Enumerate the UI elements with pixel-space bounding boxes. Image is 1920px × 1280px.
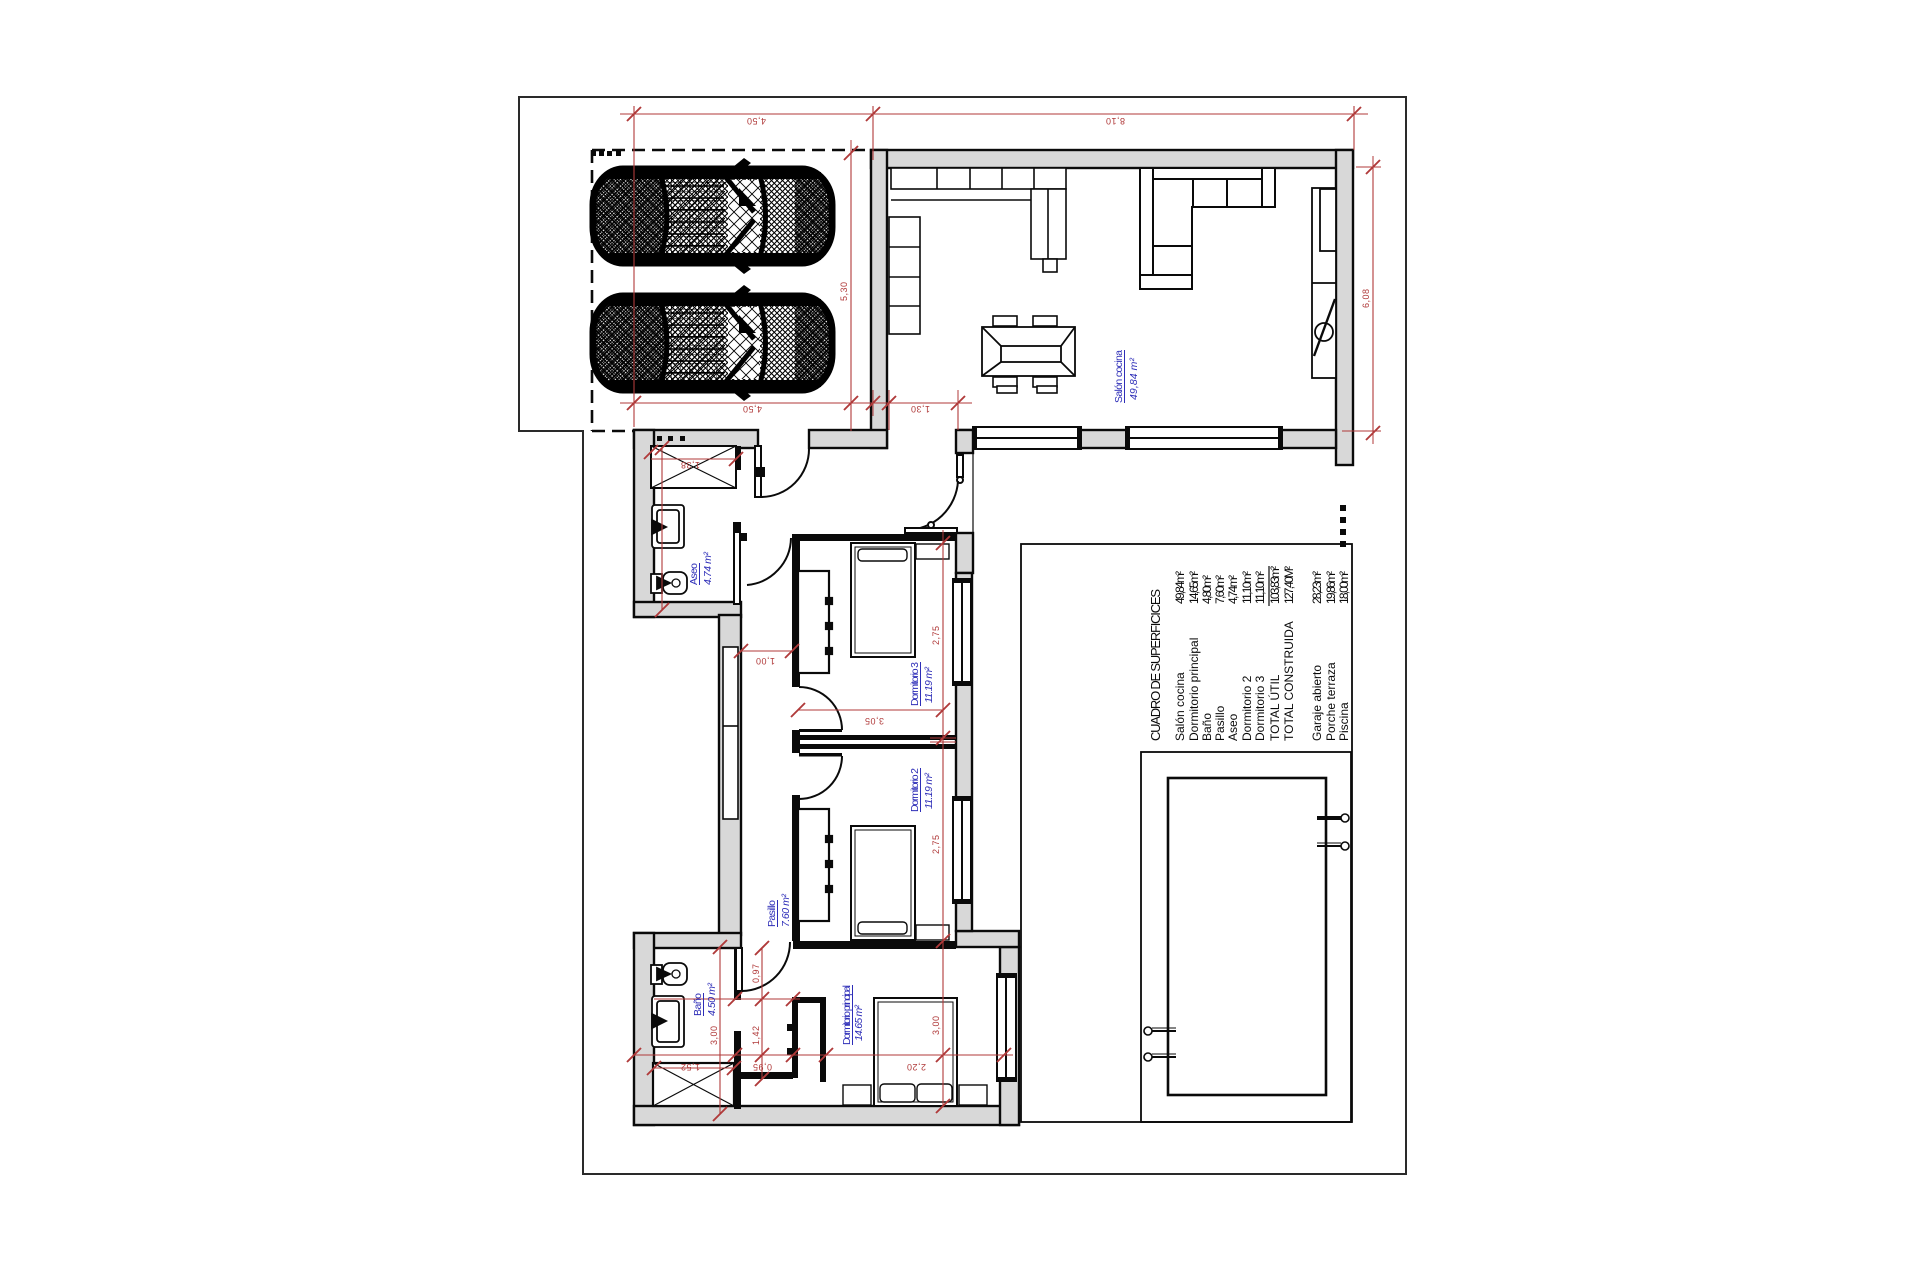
svg-text:TOTAL CONSTRUIDA: TOTAL CONSTRUIDA: [1282, 621, 1296, 741]
svg-text:2,75: 2,75: [931, 626, 941, 645]
svg-text:6,08: 6,08: [1361, 289, 1371, 308]
svg-text:103,83m²: 103,83m²: [1268, 566, 1282, 604]
svg-text:Aseo: Aseo: [1226, 713, 1240, 741]
svg-text:Dormitorio 2: Dormitorio 2: [909, 768, 921, 812]
svg-text:18,00m²: 18,00m²: [1337, 571, 1351, 604]
svg-text:3,00: 3,00: [709, 1026, 719, 1045]
svg-text:Salón cocina: Salón cocina: [1113, 350, 1125, 403]
svg-text:Salón cocina: Salón cocina: [1173, 672, 1187, 741]
svg-text:49,84 m²: 49,84 m²: [1128, 358, 1140, 401]
svg-text:7,60m²: 7,60m²: [1213, 575, 1227, 604]
svg-text:5,30: 5,30: [839, 282, 849, 301]
svg-text:1,00: 1,00: [756, 656, 775, 666]
svg-text:Dormitorio 2: Dormitorio 2: [1240, 675, 1254, 741]
svg-text:Aseo: Aseo: [688, 563, 700, 585]
svg-text:Dormitorio 3: Dormitorio 3: [1253, 675, 1267, 741]
svg-text:Garaje abierto: Garaje abierto: [1310, 665, 1324, 741]
svg-text:11.19 m²: 11.19 m²: [923, 773, 935, 810]
svg-text:11,10m²: 11,10m²: [1240, 571, 1254, 604]
svg-text:Dormitorio principal: Dormitorio principal: [1187, 638, 1201, 741]
svg-text:Baño: Baño: [1200, 713, 1214, 741]
svg-text:0,97: 0,97: [751, 964, 761, 983]
svg-text:127,40M²: 127,40M²: [1282, 566, 1296, 604]
svg-text:Piscina: Piscina: [1337, 702, 1351, 741]
svg-text:28,23m²: 28,23m²: [1310, 571, 1324, 604]
svg-text:1,30: 1,30: [911, 404, 930, 414]
svg-text:49,84m²: 49,84m²: [1173, 571, 1187, 604]
svg-text:4,80m²: 4,80m²: [1200, 575, 1214, 604]
svg-text:2,20: 2,20: [907, 1062, 926, 1072]
svg-text:11.19 m²: 11.19 m²: [923, 667, 935, 704]
svg-text:4,50: 4,50: [743, 404, 762, 414]
svg-text:0,95: 0,95: [753, 1062, 772, 1072]
svg-text:Pasillo: Pasillo: [766, 900, 778, 927]
svg-text:3,05: 3,05: [865, 716, 884, 726]
svg-text:1,42: 1,42: [751, 1026, 761, 1045]
svg-text:Dormitorio 3: Dormitorio 3: [909, 662, 921, 706]
svg-text:Dormitorio principal: Dormitorio principal: [841, 985, 853, 1045]
svg-text:11,10m²: 11,10m²: [1253, 571, 1267, 604]
svg-text:Pasillo: Pasillo: [1213, 705, 1227, 741]
svg-text:CUADRO DE SUPERFICICES: CUADRO DE SUPERFICICES: [1148, 589, 1163, 741]
svg-text:Porche terraza: Porche terraza: [1324, 662, 1338, 741]
svg-text:4.74 m²: 4.74 m²: [702, 552, 714, 586]
svg-text:1,52: 1,52: [681, 1062, 700, 1072]
svg-text:4,50: 4,50: [747, 116, 766, 126]
svg-text:2,75: 2,75: [931, 835, 941, 854]
svg-text:Baño: Baño: [692, 993, 704, 1016]
svg-text:3,00: 3,00: [931, 1016, 941, 1035]
svg-text:8,10: 8,10: [1106, 116, 1125, 126]
svg-text:7.60 m²: 7.60 m²: [780, 894, 792, 928]
svg-text:4.50 m²: 4.50 m²: [706, 983, 718, 1017]
svg-text:4,74m²: 4,74m²: [1226, 575, 1240, 604]
svg-text:19,86m²: 19,86m²: [1324, 571, 1338, 604]
svg-text:14.65 m²: 14.65 m²: [853, 1005, 865, 1042]
svg-text:14,65m²: 14,65m²: [1187, 571, 1201, 604]
svg-text:TOTAL ÚTIL: TOTAL ÚTIL: [1267, 674, 1282, 741]
svg-text:1,38: 1,38: [681, 460, 700, 470]
